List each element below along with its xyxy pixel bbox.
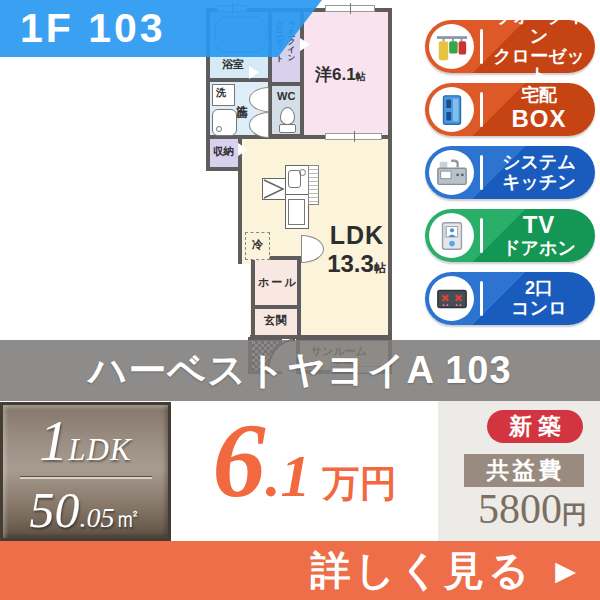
window-icon — [325, 5, 375, 12]
kitchen-counter-icon — [285, 165, 309, 229]
feature-label: TVドアホン — [487, 212, 591, 258]
building-name-banner: ハーベストヤヨイA 103 — [0, 340, 600, 401]
walk-in-closet-icon — [429, 24, 474, 69]
building-name-label: ハーベストヤヨイA 103 — [88, 345, 511, 396]
see-details-button[interactable]: 詳しく見る ▶ — [0, 541, 600, 600]
pill-divider — [480, 281, 483, 316]
toilet-tank-icon — [279, 124, 296, 133]
unit-number-label: 1F 103 — [20, 5, 166, 52]
divider — [20, 476, 152, 479]
pill-divider — [480, 29, 483, 64]
feature-label: システムキッチン — [487, 153, 591, 193]
feature-label: 2口コンロ — [487, 279, 591, 319]
entrance-label: 玄関 — [264, 314, 288, 326]
property-listing-card: 浴室 洗 洗面 WC ウォークイン クローゼット 洋6.1帖 収納 冷 LDK … — [0, 0, 600, 600]
fee-panel: 新築 共益費 5800円 — [438, 401, 600, 541]
see-details-label: 詳しく見る — [310, 543, 533, 598]
fridge-label: 冷 — [252, 238, 263, 250]
western-room-label: 洋6.1帖 — [315, 66, 366, 85]
washer-label: 洗 — [216, 87, 226, 98]
floor-plan: 浴室 洗 洗面 WC ウォークイン クローゼット 洋6.1帖 収納 冷 LDK … — [205, 8, 393, 376]
kitchen-hatch-icon — [308, 165, 319, 205]
window-icon — [325, 133, 382, 140]
layout-label: 1LDK — [3, 407, 168, 474]
feature-tv-doorphone: TVドアホン — [425, 209, 595, 262]
wc-label: WC — [277, 90, 295, 102]
tv-doorphone-icon — [429, 213, 474, 258]
bath-label: 浴室 — [222, 58, 244, 70]
prep-table-icon — [262, 178, 286, 200]
pill-divider — [480, 218, 483, 253]
hall-label: ホール — [258, 276, 298, 288]
new-construction-badge: 新築 — [487, 410, 583, 443]
feature-label: ウォークインクローゼット — [487, 7, 591, 86]
feature-two-burner-stove: 2口コンロ — [425, 272, 595, 325]
storage-label: 収納 — [213, 146, 234, 158]
feature-label: 宅配BOX — [487, 86, 591, 132]
pill-divider — [480, 92, 483, 127]
arrow-right-icon: ▶ — [555, 555, 576, 587]
delivery-box-icon — [429, 87, 474, 132]
area-label: 50.05㎡ — [3, 481, 168, 539]
feature-delivery-box: 宅配BOX — [425, 83, 595, 136]
washbasin-icon — [212, 109, 237, 136]
common-fee-label: 共益費 — [464, 454, 584, 487]
washroom-label: 洗面 — [236, 96, 248, 100]
two-burner-stove-icon — [429, 276, 474, 321]
layout-area-block: 1LDK 50.05㎡ — [0, 402, 171, 541]
toilet-icon — [280, 107, 295, 125]
feature-walk-in-closet: ウォークインクローゼット — [425, 20, 595, 73]
system-kitchen-icon — [429, 150, 474, 195]
summary-strip: 新築 共益費 5800円 1LDK 50.05㎡ 6.1万円 — [0, 401, 600, 541]
common-fee-value: 5800円 — [478, 488, 587, 535]
ldk-label: LDK 13.3帖 — [325, 222, 389, 277]
pill-divider — [480, 155, 483, 190]
rent-price: 6.1万円 — [171, 401, 438, 541]
feature-system-kitchen: システムキッチン — [425, 146, 595, 199]
